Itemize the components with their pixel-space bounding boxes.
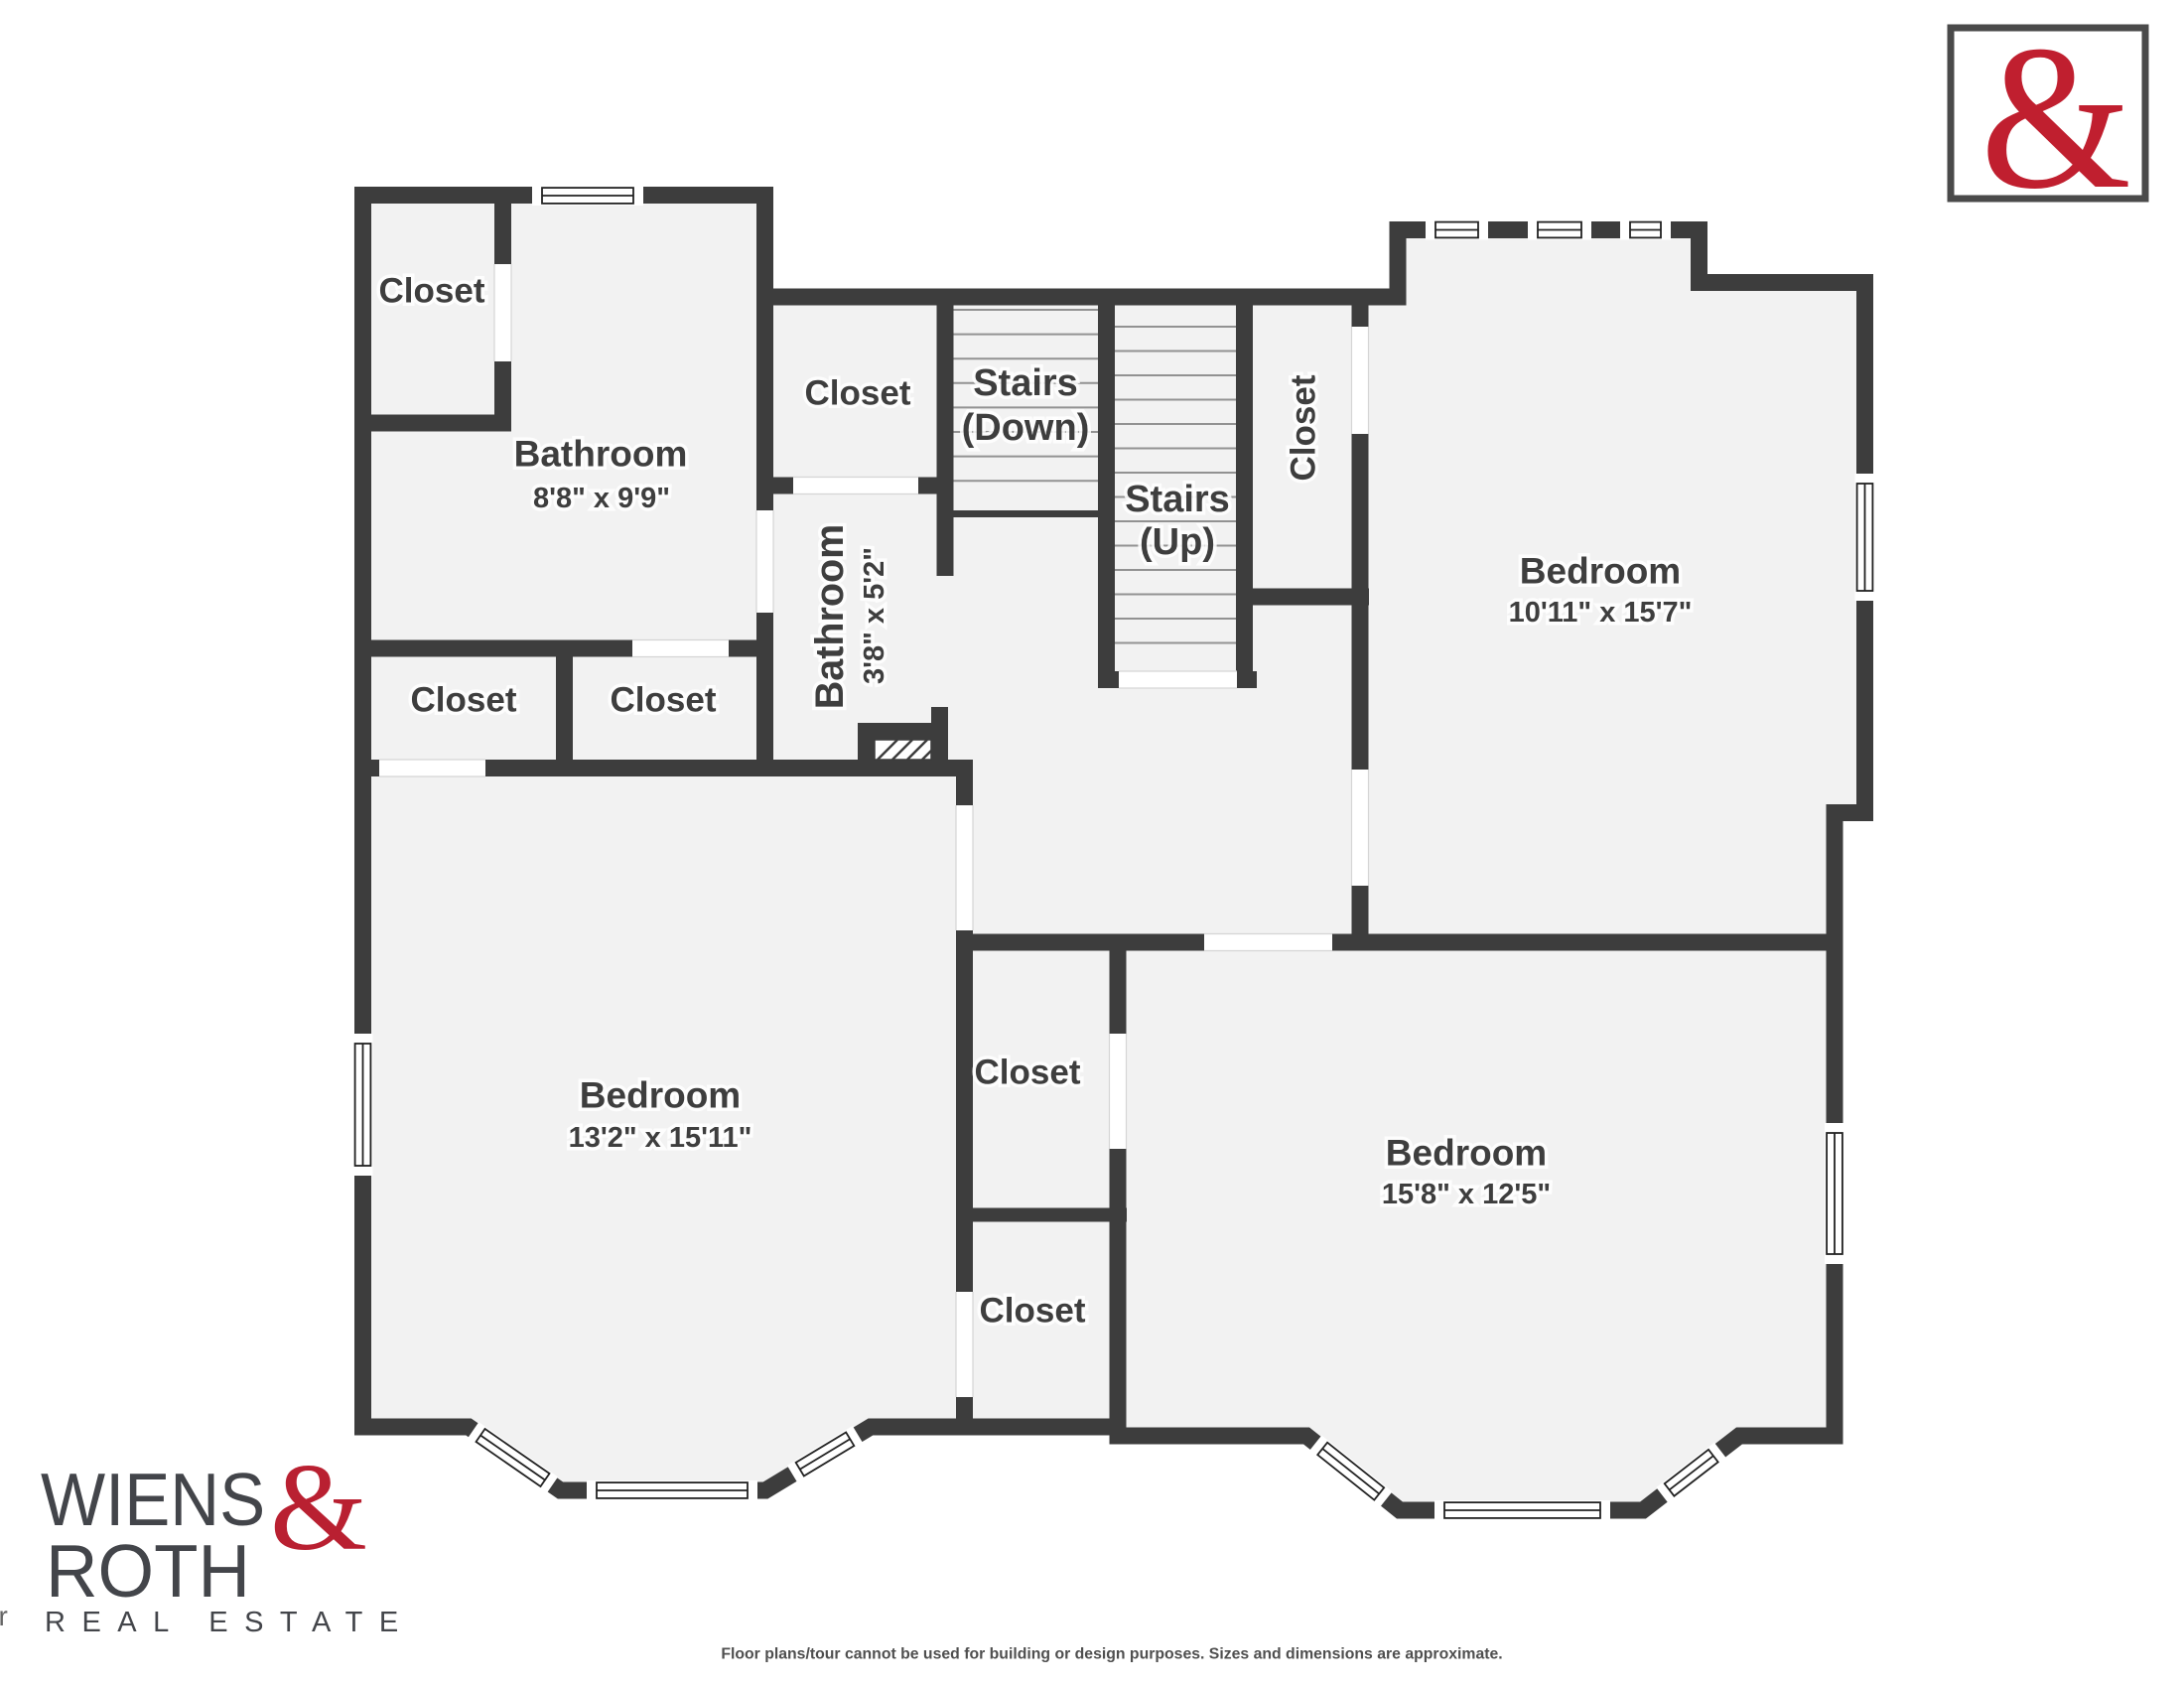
svg-text:10'11" x 15'7": 10'11" x 15'7": [1509, 597, 1693, 629]
svg-text:r: r: [0, 1601, 8, 1631]
svg-text:Closet: Closet: [975, 1054, 1081, 1092]
svg-text:Bedroom: Bedroom: [1386, 1133, 1547, 1174]
svg-text:REAL ESTATE: REAL ESTATE: [45, 1607, 415, 1638]
svg-text:ROTH: ROTH: [46, 1529, 250, 1613]
svg-text:3'8" x 5'2": 3'8" x 5'2": [859, 547, 890, 684]
svg-text:15'8" x 12'5": 15'8" x 12'5": [1382, 1179, 1551, 1210]
svg-text:Bedroom: Bedroom: [580, 1075, 741, 1116]
svg-text:Stairs: Stairs: [1125, 479, 1230, 520]
svg-text:Closet: Closet: [1285, 374, 1323, 481]
svg-text:Floor plans/tour cannot be use: Floor plans/tour cannot be used for buil…: [721, 1646, 1502, 1663]
svg-text:Closet: Closet: [980, 1292, 1086, 1331]
svg-text:Stairs: Stairs: [973, 362, 1078, 404]
svg-text:8'8" x 9'9": 8'8" x 9'9": [533, 483, 670, 514]
svg-text:Closet: Closet: [379, 272, 485, 311]
svg-text:Bathroom: Bathroom: [514, 434, 688, 475]
svg-text:(Up): (Up): [1140, 521, 1215, 563]
svg-text:13'2" x 15'11": 13'2" x 15'11": [569, 1122, 752, 1154]
svg-text:Closet: Closet: [411, 681, 517, 720]
svg-text:Closet: Closet: [611, 681, 717, 720]
svg-text:Bedroom: Bedroom: [1520, 551, 1681, 592]
svg-text:&: &: [270, 1439, 367, 1577]
svg-text:Closet: Closet: [805, 374, 911, 413]
svg-text:Bathroom: Bathroom: [808, 524, 852, 710]
svg-text:(Down): (Down): [962, 407, 1090, 449]
svg-text:&: &: [1980, 3, 2131, 232]
